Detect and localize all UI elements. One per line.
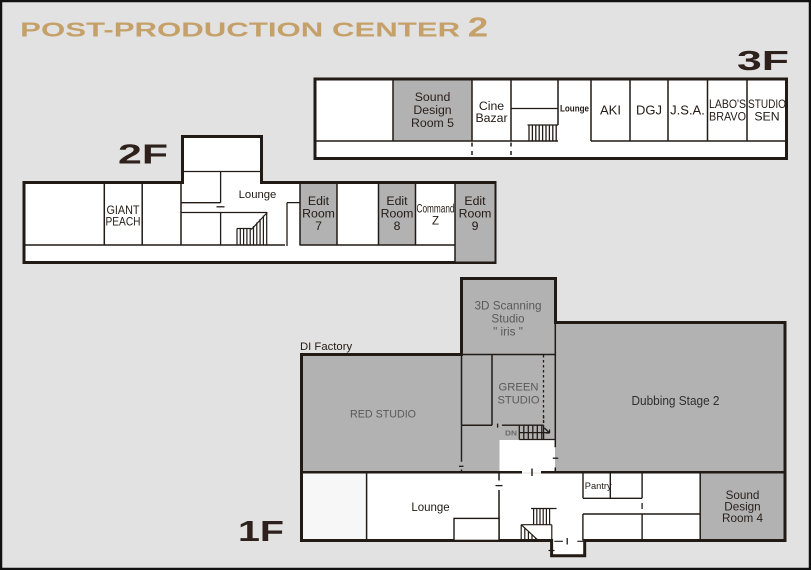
svg-text:POST-PRODUCTION CENTER: POST-PRODUCTION CENTER	[20, 18, 460, 41]
svg-text:Z: Z	[432, 216, 439, 228]
svg-text:RED STUDIO: RED STUDIO	[350, 409, 416, 421]
svg-text:PEACH: PEACH	[106, 216, 141, 229]
svg-text:Design: Design	[413, 103, 451, 117]
svg-text:Studio: Studio	[491, 313, 525, 326]
svg-text:AKI: AKI	[600, 103, 621, 118]
svg-text:Pantry: Pantry	[585, 481, 612, 491]
svg-text:STUDIO: STUDIO	[498, 395, 540, 407]
svg-text:7: 7	[315, 219, 322, 233]
svg-text:Command: Command	[417, 204, 455, 216]
svg-text:Lounge: Lounge	[560, 104, 589, 115]
svg-text:Dubbing Stage 2: Dubbing Stage 2	[632, 394, 720, 408]
svg-text:DI Factory: DI Factory	[300, 341, 352, 353]
svg-text:Room 4: Room 4	[722, 512, 763, 525]
svg-text:SEN: SEN	[754, 110, 779, 124]
svg-text:Sound: Sound	[415, 90, 451, 104]
svg-text:2: 2	[468, 11, 488, 42]
svg-text:3F: 3F	[737, 45, 789, 76]
svg-text:8: 8	[394, 219, 401, 233]
svg-text:J.S.A.: J.S.A.	[670, 103, 705, 118]
svg-text:Bazar: Bazar	[475, 111, 507, 125]
svg-text:Lounge: Lounge	[411, 502, 449, 514]
svg-text:GREEN: GREEN	[499, 382, 539, 394]
svg-text:2F: 2F	[118, 139, 168, 170]
svg-text:Room 5: Room 5	[411, 116, 454, 130]
svg-text:3D Scanning: 3D Scanning	[475, 300, 542, 313]
svg-text:9: 9	[472, 219, 479, 233]
svg-text:DGJ: DGJ	[636, 103, 662, 118]
svg-text:" iris ": " iris "	[493, 326, 523, 339]
svg-text:1F: 1F	[238, 516, 284, 548]
svg-text:Lounge: Lounge	[239, 189, 277, 201]
svg-text:BRAVO: BRAVO	[709, 110, 746, 124]
svg-text:DN: DN	[505, 429, 517, 438]
